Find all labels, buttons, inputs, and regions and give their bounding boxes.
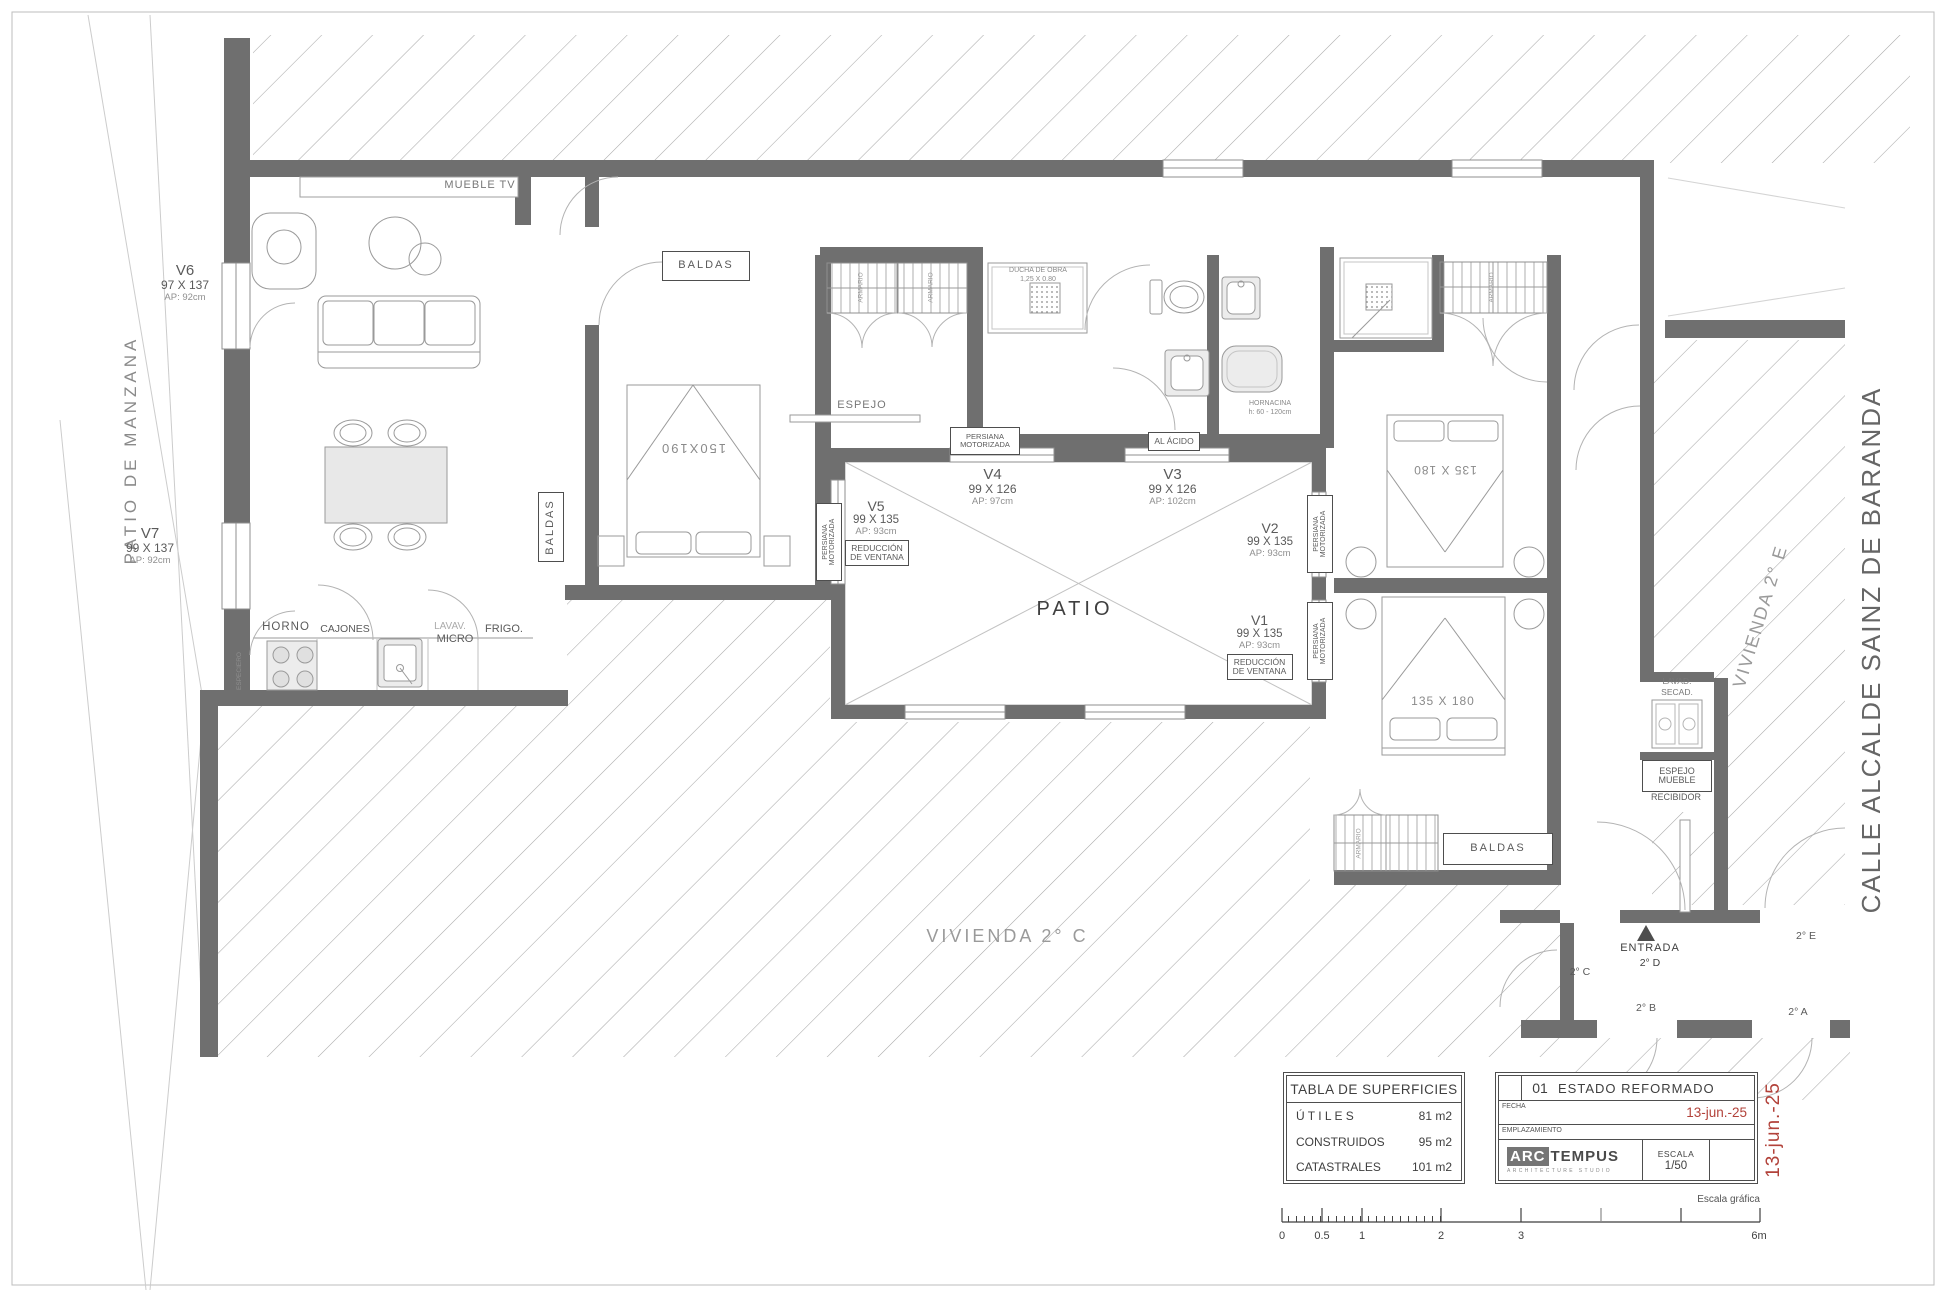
unit-2a-label: 2° A [1778, 1006, 1818, 1018]
bed-150x190 [627, 385, 760, 557]
entrada-label: ENTRADA [1608, 942, 1692, 955]
surface-row-construidos: CONSTRUIDOS 95 m2 [1287, 1129, 1461, 1155]
armario-label: ARMARIO [1489, 263, 1498, 313]
espejo-mueble-line2: MUEBLE [1658, 776, 1695, 785]
title-block-blank-cell [1499, 1076, 1522, 1100]
escala-grafica-caption: Escala gráfica [1660, 1194, 1760, 1206]
persiana-line1: PERSIANA [1313, 623, 1320, 658]
lavad-line: LAVAD. [1648, 676, 1706, 687]
window-id: V5 [845, 498, 907, 514]
scale-tick-3: 3 [1515, 1230, 1527, 1243]
micro-label: MICRO [430, 633, 480, 646]
surface-table: TABLA DE SUPERFICIES Ú T I L E S 81 m2 C… [1283, 1072, 1465, 1184]
escala-label: ESCALA [1658, 1149, 1695, 1159]
persiana-line2: MOTORIZADA [960, 441, 1010, 449]
escala-cell: ESCALA 1/50 [1643, 1140, 1710, 1180]
ducha-line2: 1,25 X 0.80 [992, 275, 1084, 284]
window-v6-label: V6 97 X 137 AP: 92cm [140, 262, 230, 304]
persiana-line2: MOTORIZADA [1320, 618, 1327, 665]
lavadora-secadora-label: LAVAD. SECAD. [1648, 676, 1706, 697]
espejo-label: ESPEJO [832, 399, 892, 412]
title-block-row-emplazamiento: EMPLAZAMIENTO [1498, 1125, 1755, 1140]
window-v4-label: V4 99 X 126 AP: 97cm [955, 466, 1030, 508]
armario-label: ARMARIO [1356, 819, 1365, 869]
persiana-line2: MOTORIZADA [1320, 511, 1327, 558]
window-dim: 99 X 126 [1135, 483, 1210, 497]
bed-size-label: 135 X 180 [1398, 695, 1488, 709]
toilet [1150, 280, 1162, 314]
hornacina-line2: h: 60 - 120cm [1238, 408, 1302, 417]
emplazamiento-label: EMPLAZAMIENTO [1502, 1127, 1562, 1134]
cajones-label: CAJONES [316, 623, 374, 635]
baldas-shelf-label: BALDAS [662, 251, 750, 281]
fecha-label: FECHA [1502, 1103, 1526, 1110]
scale-tick-05: 0.5 [1310, 1230, 1334, 1243]
armario-label: ARMARIO [858, 263, 867, 313]
horno-label: HORNO [258, 621, 314, 634]
dining-table [325, 447, 447, 523]
window-id: V6 [140, 262, 230, 279]
surface-key: Ú T I L E S [1296, 1109, 1354, 1123]
logo-tempus: TEMPUS [1551, 1148, 1620, 1165]
graphic-scale [1282, 1208, 1760, 1222]
al-acido-label: AL ÁCIDO [1148, 432, 1200, 451]
persiana-motorizada-label-v5: PERSIANA MOTORIZADA [816, 503, 842, 581]
window-ap: AP: 92cm [105, 556, 195, 567]
window-v2-label: V2 99 X 135 AP: 93cm [1235, 520, 1305, 560]
ducha-line1: DUCHA DE OBRA [992, 266, 1084, 275]
persiana-motorizada-label-v2: PERSIANA MOTORIZADA [1307, 495, 1333, 573]
bed-size-label: 150X190 [648, 440, 738, 455]
secad-line: SECAD. [1648, 687, 1706, 698]
window-dim: 99 X 126 [955, 483, 1030, 497]
window-ap: AP: 93cm [845, 527, 907, 538]
persiana-line1: PERSIANA [822, 524, 829, 559]
side-table [369, 217, 421, 269]
floor-plan-sheet: PATIO DE MANZANA V6 97 X 137 AP: 92cm V7… [0, 0, 1946, 1297]
surface-key: CATASTRALES [1296, 1160, 1381, 1174]
window-v7-label: V7 99 X 137 AP: 92cm [105, 525, 195, 567]
vivienda-2c-label: VIVIENDA 2° C [895, 926, 1120, 947]
bed-size-label: 135 X 180 [1400, 462, 1490, 476]
logo-subtitle: ARCHITECTURE STUDIO [1507, 1168, 1642, 1174]
window-ap: AP: 92cm [140, 293, 230, 304]
especiero-label: ESPECIERO [236, 643, 246, 699]
reduccion-ventana-note: REDUCCIÓN DE VENTANA [845, 540, 909, 566]
escala-value: 1/50 [1665, 1160, 1687, 1172]
armario-label: ARMARIO [928, 263, 937, 313]
arctempus-logo: ARC TEMPUS ARCHITECTURE STUDIO [1499, 1140, 1643, 1180]
persiana-line1: PERSIANA [1313, 516, 1320, 551]
window-dim: 99 X 137 [105, 542, 195, 556]
window-v3-label: V3 99 X 126 AP: 102cm [1135, 466, 1210, 508]
baldas-shelf-label-bedroom3: BALDAS [1443, 833, 1553, 865]
window-id: V1 [1222, 612, 1297, 628]
hornacina-line1: HORNACINA [1238, 399, 1302, 408]
window-ap: AP: 93cm [1222, 641, 1297, 652]
sofa [318, 296, 480, 368]
recibidor-label: RECIBIDOR [1640, 792, 1712, 802]
reduccion-line2: DE VENTANA [850, 553, 904, 562]
mueble-tv-label: MUEBLE TV [430, 179, 530, 192]
window-ap: AP: 93cm [1235, 549, 1305, 560]
bathtub [1222, 346, 1282, 392]
window-dim: 97 X 137 [140, 279, 230, 293]
sheet-name: ESTADO REFORMADO [1558, 1076, 1754, 1100]
unit-2e-label: 2° E [1786, 930, 1826, 942]
lavavajillas-label: LAVAV. [428, 621, 472, 633]
scale-tick-2: 2 [1435, 1230, 1447, 1243]
entrada-unit-label: 2° D [1626, 957, 1674, 969]
unit-2b-label: 2° B [1626, 1002, 1666, 1014]
espejo-mueble-label: ESPEJO MUEBLE [1642, 760, 1712, 792]
scale-tick-1: 1 [1356, 1230, 1368, 1243]
persiana-motorizada-label-v1: PERSIANA MOTORIZADA [1307, 602, 1333, 680]
baldas-shelf-label-vertical: BALDAS [538, 492, 564, 562]
reduccion-ventana-note: REDUCCIÓN DE VENTANA [1227, 654, 1293, 680]
surface-row-utiles: Ú T I L E S 81 m2 [1287, 1103, 1461, 1129]
persiana-motorizada-label: PERSIANA MOTORIZADA [950, 427, 1020, 455]
mirror [790, 415, 920, 422]
logo-arc: ARC [1507, 1147, 1549, 1166]
window-id: V7 [105, 525, 195, 542]
window-id: V3 [1135, 466, 1210, 483]
sheet-number: 01 [1522, 1076, 1558, 1100]
fecha-value: 13-jun.-25 [1686, 1105, 1747, 1120]
surface-key: CONSTRUIDOS [1296, 1135, 1385, 1149]
title-block-row-title: 01 ESTADO REFORMADO [1498, 1075, 1755, 1101]
window-id: V2 [1235, 520, 1305, 536]
surface-table-title: TABLA DE SUPERFICIES [1287, 1076, 1461, 1103]
window-ap: AP: 102cm [1135, 497, 1210, 508]
calle-label: CALLE ALCALDE SAINZ DE BARANDA [1857, 360, 1891, 940]
bed-135x180-top [1387, 415, 1503, 567]
title-block-row-logo: ARC TEMPUS ARCHITECTURE STUDIO ESCALA 1/… [1498, 1140, 1755, 1181]
scale-tick-6m: 6m [1742, 1230, 1776, 1243]
surface-value: 101 m2 [1412, 1160, 1452, 1174]
unit-2c-label: 2° C [1560, 966, 1600, 978]
surface-row-catastrales: CATASTRALES 101 m2 [1287, 1154, 1461, 1180]
ducha-de-obra-label: DUCHA DE OBRA 1,25 X 0.80 [992, 266, 1084, 284]
window-id: V4 [955, 466, 1030, 483]
surface-value: 81 m2 [1419, 1109, 1452, 1123]
window-v5-label: V5 99 X 135 AP: 93cm REDUCCIÓN DE VENTAN… [845, 498, 907, 566]
entry-door-leaf [1680, 820, 1690, 912]
armchair [252, 213, 316, 289]
surface-value: 95 m2 [1419, 1135, 1452, 1149]
title-block: 01 ESTADO REFORMADO FECHA 13-jun.-25 EMP… [1495, 1072, 1758, 1184]
reduccion-line2: DE VENTANA [1233, 667, 1287, 676]
surface-table-inner: TABLA DE SUPERFICIES Ú T I L E S 81 m2 C… [1286, 1075, 1462, 1181]
persiana-line2: MOTORIZADA [829, 519, 836, 566]
north-cell [1710, 1140, 1754, 1180]
scale-tick-0: 0 [1276, 1230, 1288, 1243]
window-ap: AP: 97cm [955, 497, 1030, 508]
frigo-label: FRIGO. [478, 623, 530, 636]
hornacina-label: HORNACINA h: 60 - 120cm [1238, 399, 1302, 417]
title-block-row-fecha: FECHA 13-jun.-25 [1498, 1101, 1755, 1125]
window-v1-label: V1 99 X 135 AP: 93cm REDUCCIÓN DE VENTAN… [1222, 612, 1297, 680]
patio-label: PATIO [1025, 598, 1125, 621]
side-date-label: 13-jun.-25 [1763, 1050, 1787, 1210]
